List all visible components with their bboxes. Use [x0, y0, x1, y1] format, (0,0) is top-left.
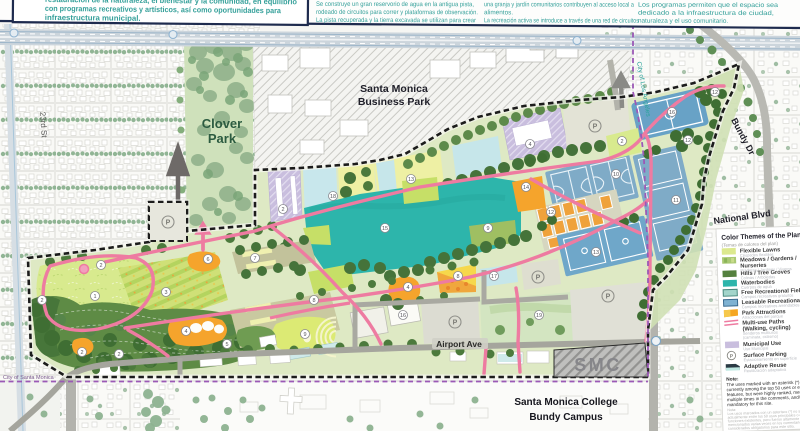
svg-text:Park: Park — [208, 131, 237, 146]
svg-text:12: 12 — [712, 90, 718, 96]
svg-text:23rd St: 23rd St — [38, 112, 49, 139]
svg-text:Business Park: Business Park — [358, 96, 431, 108]
svg-text:16: 16 — [400, 313, 406, 319]
svg-text:2: 2 — [620, 139, 623, 145]
svg-text:5: 5 — [225, 342, 228, 348]
svg-text:7: 7 — [253, 256, 256, 262]
svg-text:18: 18 — [330, 194, 336, 200]
svg-text:alimentos.: alimentos. — [484, 9, 513, 16]
svg-text:City of Santa Monica: City of Santa Monica — [3, 375, 55, 381]
svg-text:12: 12 — [685, 138, 691, 144]
svg-text:P: P — [453, 320, 458, 327]
svg-text:una granja y jardín comunitari: una granja y jardín comunitarios contrib… — [484, 1, 634, 8]
svg-text:3: 3 — [164, 290, 167, 296]
svg-text:13: 13 — [593, 250, 599, 256]
svg-text:11: 11 — [673, 198, 679, 204]
svg-text:13: 13 — [408, 177, 414, 183]
svg-text:Se construye un gran reservori: Se construye un gran reservorio de agua … — [316, 1, 474, 8]
svg-text:Airport Ave: Airport Ave — [436, 339, 482, 349]
svg-text:4: 4 — [406, 285, 409, 291]
svg-text:4: 4 — [184, 329, 187, 335]
svg-text:La recreación activa se introd: La recreación activa se introduce a trav… — [484, 17, 639, 24]
svg-text:2: 2 — [80, 350, 83, 356]
svg-text:10: 10 — [613, 172, 619, 178]
svg-text:P: P — [606, 294, 611, 301]
svg-text:Santa Monica: Santa Monica — [360, 83, 428, 95]
svg-text:P: P — [536, 275, 541, 282]
svg-text:17: 17 — [491, 274, 497, 280]
svg-text:rodeado de circuitos para corr: rodeado de circuitos para correr y plata… — [316, 9, 478, 16]
svg-text:2: 2 — [99, 263, 102, 269]
svg-text:Uso Municipal: Uso Municipal — [743, 345, 768, 351]
svg-text:8: 8 — [312, 298, 315, 304]
svg-text:9: 9 — [486, 226, 489, 232]
svg-text:P: P — [593, 124, 598, 131]
svg-text:19: 19 — [536, 313, 542, 319]
svg-text:naturaleza y el uso comunitari: naturaleza y el uso comunitario. — [638, 18, 728, 25]
svg-text:2: 2 — [281, 207, 284, 213]
svg-text:12: 12 — [548, 210, 554, 216]
svg-text:2: 2 — [117, 352, 120, 358]
svg-text:8: 8 — [456, 274, 459, 280]
svg-text:16: 16 — [669, 110, 675, 116]
svg-text:14: 14 — [523, 185, 529, 191]
svg-text:4: 4 — [528, 142, 531, 148]
svg-text:La pista recuperada y la tierr: La pista recuperada y la tierra excavada… — [316, 17, 477, 24]
svg-text:2: 2 — [40, 298, 43, 304]
svg-text:Los programas permiten que el: Los programas permiten que el espacio se… — [638, 2, 779, 9]
svg-text:Bundy Campus: Bundy Campus — [529, 412, 603, 423]
svg-text:SMC: SMC — [574, 355, 622, 375]
svg-text:infraestructura municipal.: infraestructura municipal. — [45, 13, 141, 23]
svg-text:Clover: Clover — [202, 116, 242, 131]
svg-text:1: 1 — [93, 294, 96, 300]
svg-text:9: 9 — [303, 332, 306, 338]
svg-text:6: 6 — [206, 257, 209, 263]
svg-text:dedicado a la infraestructura: dedicado a la infraestructura de ciudad, — [638, 10, 774, 17]
svg-text:Santa Monica College: Santa Monica College — [514, 397, 618, 408]
svg-text:15: 15 — [382, 226, 388, 232]
svg-text:P: P — [166, 220, 171, 227]
